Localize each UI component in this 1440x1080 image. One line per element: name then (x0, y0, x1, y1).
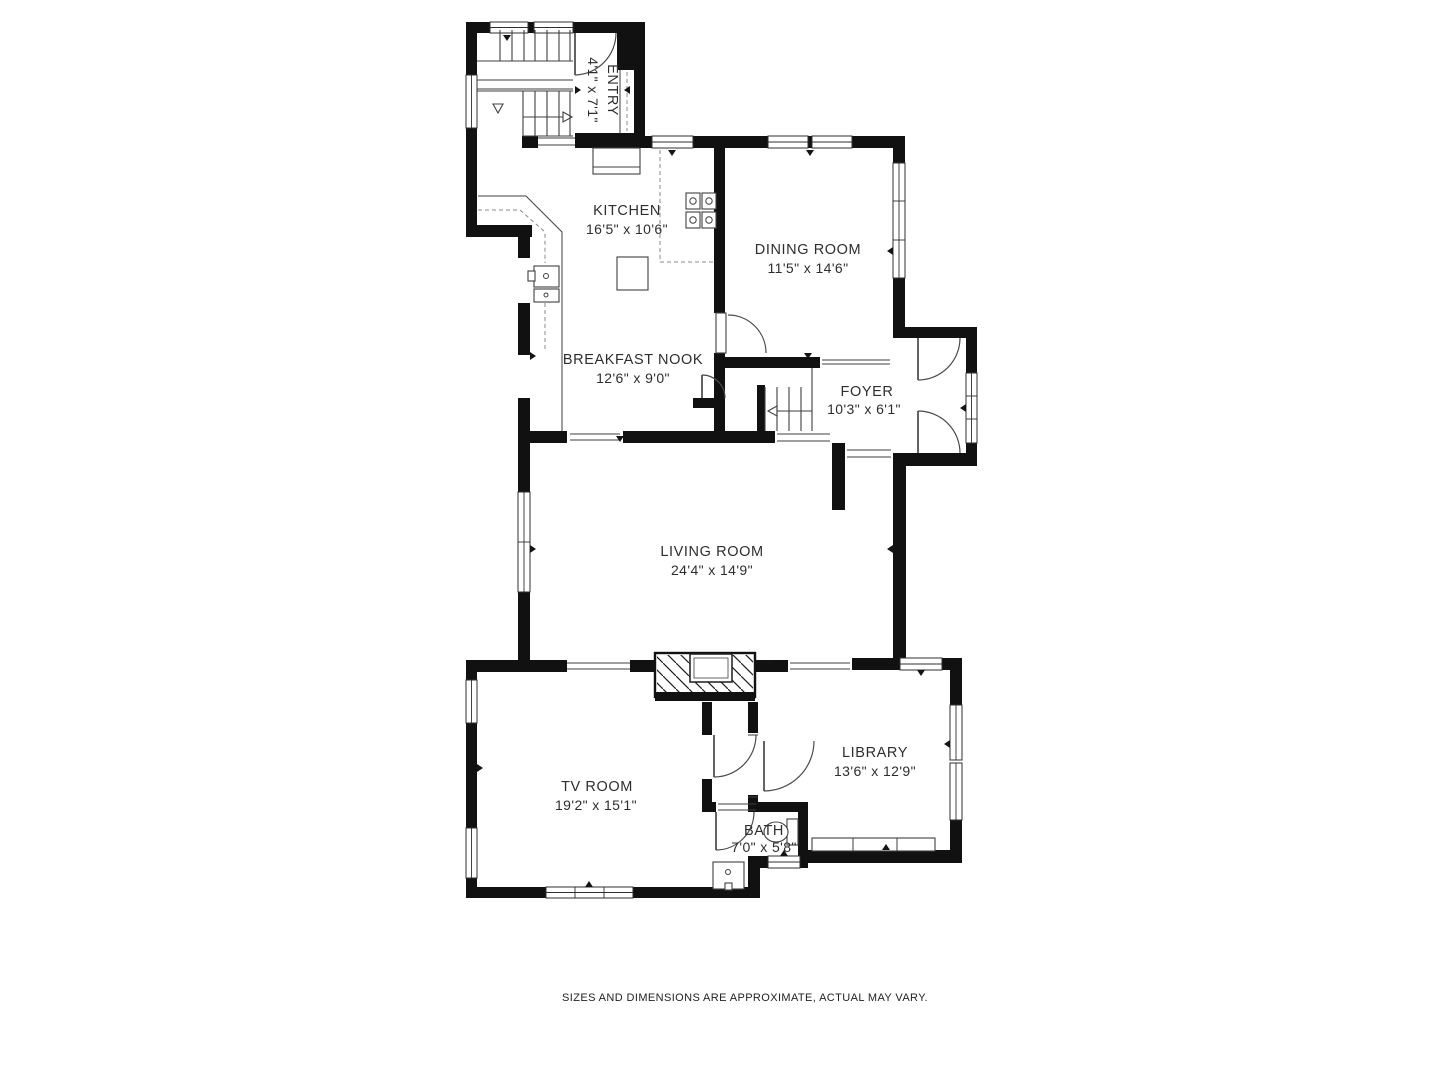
svg-text:KITCHEN: KITCHEN (593, 203, 661, 219)
foyer-closet-door-upper (918, 338, 960, 380)
disclaimer-text: SIZES AND DIMENSIONS ARE APPROXIMATE, AC… (562, 992, 928, 1004)
refrigerator (593, 148, 640, 174)
svg-text:LIVING ROOM: LIVING ROOM (660, 544, 763, 560)
svg-text:19'2" x 15'1": 19'2" x 15'1" (555, 797, 637, 813)
library-door (764, 741, 814, 791)
svg-text:12'6" x 9'0": 12'6" x 9'0" (596, 370, 670, 386)
dining-door (716, 313, 766, 353)
window (518, 492, 530, 592)
window (950, 763, 962, 820)
svg-text:DINING ROOM: DINING ROOM (755, 242, 862, 258)
room-label-tv: TV ROOM 19'2" x 15'1" (555, 779, 637, 813)
window (812, 136, 852, 148)
window (950, 705, 962, 760)
room-labels: ENTRY 4'1" x 7'1" KITCHEN 16'5" x 10'6" … (555, 57, 916, 855)
svg-text:7'0" x 5'8": 7'0" x 5'8" (731, 839, 797, 855)
basement-staircase (765, 368, 812, 431)
window (546, 887, 633, 898)
window (768, 856, 800, 868)
room-label-entry: ENTRY 4'1" x 7'1" (585, 57, 620, 123)
floorplan-drawing: ENTRY 4'1" x 7'1" KITCHEN 16'5" x 10'6" … (0, 0, 1440, 1080)
window (768, 136, 808, 148)
room-label-kitchen: KITCHEN 16'5" x 10'6" (586, 203, 668, 237)
room-label-dining: DINING ROOM 11'5" x 14'6" (755, 242, 862, 276)
svg-text:16'5" x 10'6": 16'5" x 10'6" (586, 221, 668, 237)
window (966, 373, 977, 443)
window (900, 658, 942, 670)
room-label-foyer: FOYER 10'3" x 6'1" (827, 384, 901, 417)
room-label-library: LIBRARY 13'6" x 12'9" (834, 745, 916, 779)
svg-text:24'4" x 14'9": 24'4" x 14'9" (671, 562, 753, 578)
entry-staircase (477, 30, 573, 136)
library-builtin (812, 838, 935, 851)
window (893, 163, 905, 278)
svg-text:FOYER: FOYER (841, 384, 894, 400)
fireplace (655, 653, 755, 701)
island (617, 257, 648, 290)
window (466, 828, 477, 878)
svg-text:BREAKFAST NOOK: BREAKFAST NOOK (563, 352, 703, 368)
entry-name: ENTRY (604, 64, 620, 116)
entry-closet (620, 70, 627, 133)
svg-text:11'5" x 14'6": 11'5" x 14'6" (768, 260, 849, 276)
svg-text:LIBRARY: LIBRARY (842, 745, 908, 761)
floorplan-page: ENTRY 4'1" x 7'1" KITCHEN 16'5" x 10'6" … (0, 0, 1440, 1080)
svg-text:BATH: BATH (744, 823, 784, 839)
window (534, 22, 573, 33)
room-label-nook: BREAKFAST NOOK 12'6" x 9'0" (563, 352, 703, 386)
window (652, 136, 693, 148)
svg-text:10'3" x 6'1": 10'3" x 6'1" (827, 401, 901, 417)
window (490, 22, 528, 33)
tv-room-door (714, 735, 756, 777)
stove (660, 150, 716, 262)
entry-dims: 4'1" x 7'1" (585, 57, 601, 123)
bath-sink (713, 862, 744, 890)
room-label-living: LIVING ROOM 24'4" x 14'9" (660, 544, 763, 578)
foyer-closet-door-lower (918, 411, 960, 453)
svg-text:TV ROOM: TV ROOM (561, 779, 633, 795)
sink (528, 266, 559, 302)
svg-text:13'6" x 12'9": 13'6" x 12'9" (834, 763, 916, 779)
window (466, 680, 477, 723)
window (466, 75, 477, 128)
